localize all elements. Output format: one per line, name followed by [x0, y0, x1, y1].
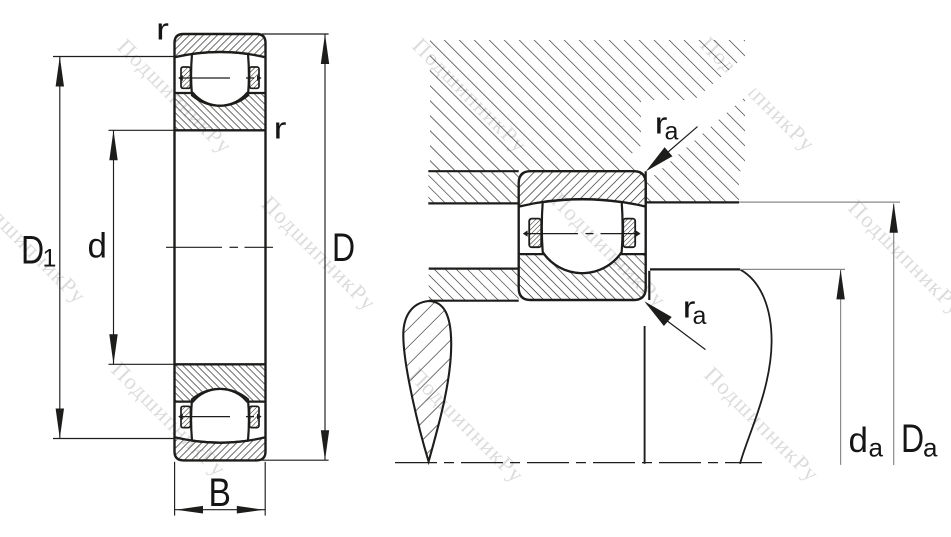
svg-text:r: r [156, 12, 169, 46]
svg-text:r: r [274, 111, 287, 145]
svg-text:ПодшипникРу: ПодшипникРу [699, 362, 824, 487]
svg-text:a: a [923, 433, 938, 463]
svg-text:D: D [332, 225, 355, 270]
svg-text:a: a [665, 118, 679, 146]
svg-text:D: D [21, 227, 44, 272]
svg-text:ПодшипникРу: ПодшипникРу [256, 191, 381, 316]
svg-text:a: a [693, 302, 707, 330]
svg-text:D: D [901, 416, 924, 461]
svg-text:ПодшипникРу: ПодшипникРу [843, 195, 951, 320]
svg-text:1: 1 [43, 245, 57, 273]
svg-text:d: d [88, 227, 107, 266]
svg-text:a: a [869, 433, 884, 463]
svg-text:d: d [849, 421, 868, 460]
svg-text:B: B [209, 470, 231, 514]
